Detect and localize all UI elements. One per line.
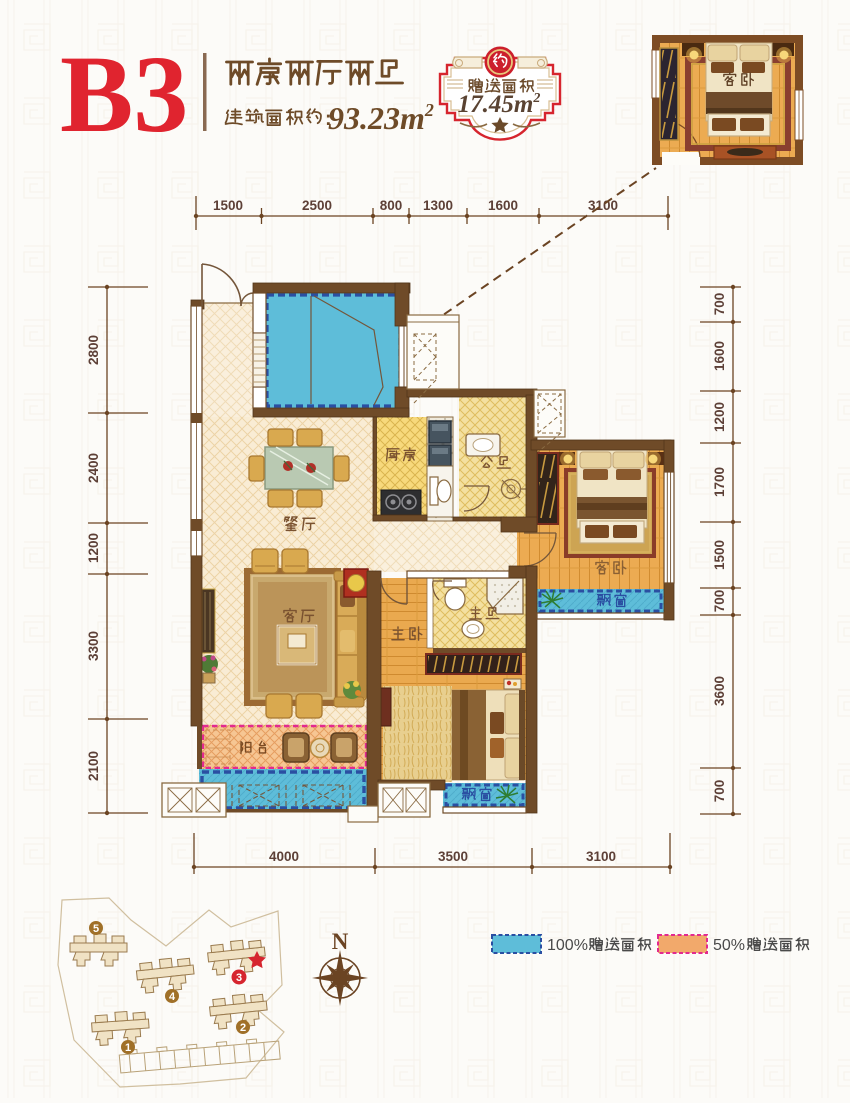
svg-text:1: 1 [125,1042,131,1054]
svg-text:700: 700 [712,780,727,803]
svg-text:17.45m2: 17.45m2 [458,91,541,118]
svg-text:3100: 3100 [586,849,616,864]
svg-text:5: 5 [93,923,99,935]
svg-text:1600: 1600 [712,341,727,371]
svg-text:3: 3 [236,972,242,984]
svg-text:1700: 1700 [712,467,727,497]
svg-text:4: 4 [169,991,176,1003]
svg-text:93.23m2: 93.23m2 [328,100,434,136]
svg-text:1200: 1200 [86,533,101,563]
svg-text:1500: 1500 [712,540,727,570]
svg-text:700: 700 [712,293,727,316]
svg-text:3600: 3600 [712,676,727,706]
svg-text:4000: 4000 [269,849,299,864]
svg-text:1600: 1600 [488,198,518,213]
svg-text:1500: 1500 [213,198,243,213]
svg-text:700: 700 [712,590,727,613]
svg-text:2: 2 [240,1022,246,1034]
svg-text:3500: 3500 [438,849,468,864]
svg-text:2800: 2800 [86,335,101,365]
svg-text:800: 800 [380,198,403,213]
svg-text:3300: 3300 [86,631,101,661]
svg-text:2500: 2500 [302,198,332,213]
svg-text:2100: 2100 [86,751,101,781]
svg-text:2400: 2400 [86,453,101,483]
svg-text:N: N [332,929,349,954]
svg-text:B3: B3 [60,33,188,155]
svg-text:1300: 1300 [423,198,453,213]
svg-text:1200: 1200 [712,402,727,432]
svg-text:50%: 50% [713,937,745,954]
svg-text:100%: 100% [547,937,588,954]
